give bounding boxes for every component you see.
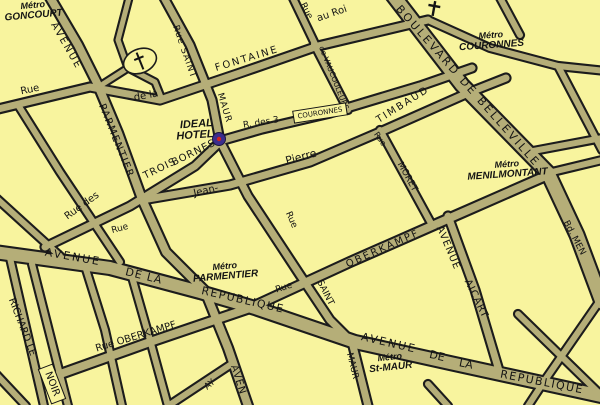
map-canvas: RueAVENUEPARMENTIERde laRue SAINTMAURFON… bbox=[0, 0, 600, 405]
ideal-hotel-label: IDEALHOTEL bbox=[175, 117, 214, 143]
hotel-marker-center bbox=[217, 137, 221, 141]
paris-street-map: RueAVENUEPARMENTIERde laRue SAINTMAURFON… bbox=[0, 0, 600, 405]
